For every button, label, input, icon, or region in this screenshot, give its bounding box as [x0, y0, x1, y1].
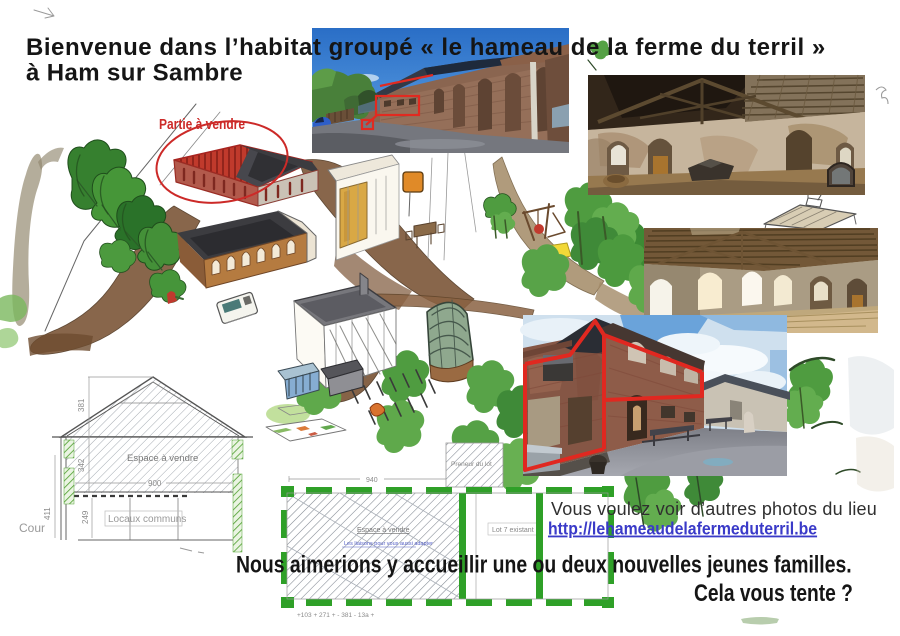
svg-text:249: 249	[81, 510, 90, 524]
svg-text:Locaux communs: Locaux communs	[108, 514, 186, 525]
svg-text:Vous voulez voir d’autres phot: Vous voulez voir d’autres photos du lieu	[551, 499, 877, 519]
svg-text:Cour: Cour	[19, 521, 45, 535]
svg-text:381: 381	[77, 398, 86, 412]
svg-text:940: 940	[366, 477, 378, 484]
svg-text:Bienvenue dans l’habitat group: Bienvenue dans l’habitat groupé « le ham…	[26, 34, 826, 61]
svg-text:342: 342	[77, 458, 86, 472]
svg-text:Nous aimerions y accueillir un: Nous aimerions y accueillir une ou deux …	[236, 551, 852, 578]
svg-text:Espace à vendre: Espace à vendre	[357, 527, 410, 534]
svg-text:Espace à vendre: Espace à vendre	[127, 453, 198, 464]
svg-text:+103 + 271 + - 381: +103 + 271 + - 381 - 13a +	[297, 612, 375, 619]
svg-text:Lot 7 existant: Lot 7 existant	[492, 527, 534, 534]
svg-text:Les liaisons pour vous aussi a: Les liaisons pour vous aussi adapter	[344, 541, 433, 547]
svg-text:900: 900	[148, 479, 162, 488]
svg-text:http://lehameaudelafermeduterr: http://lehameaudelafermeduterril.be	[548, 519, 817, 539]
svg-text:Partie à vendre: Partie à vendre	[159, 116, 245, 133]
svg-text:411: 411	[43, 507, 52, 520]
svg-text:Preneur du lot: Preneur du lot	[451, 461, 492, 468]
svg-text:Cela vous tente ?: Cela vous tente ?	[694, 579, 853, 607]
svg-text:à Ham sur Sambre: à Ham sur Sambre	[26, 60, 243, 87]
